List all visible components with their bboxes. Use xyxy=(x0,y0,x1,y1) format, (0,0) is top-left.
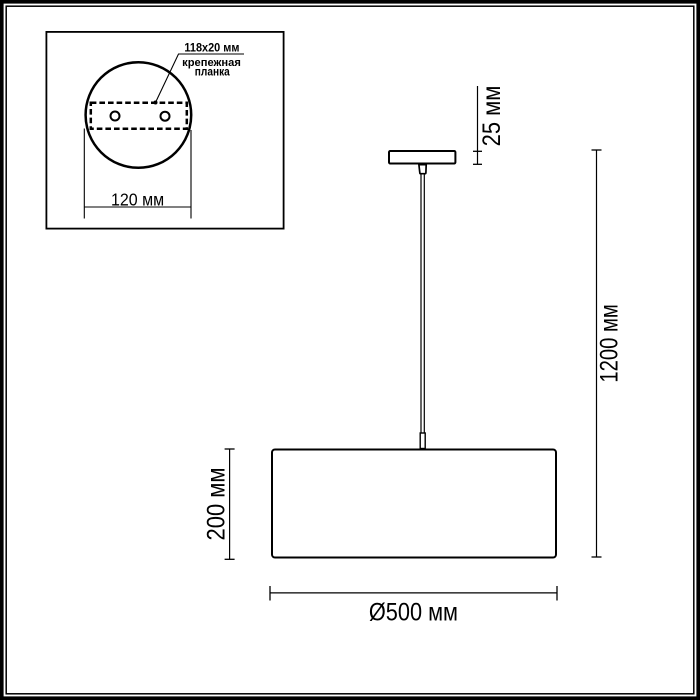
svg-text:25 мм: 25 мм xyxy=(478,86,506,147)
svg-text:Ø500 мм: Ø500 мм xyxy=(369,598,458,626)
svg-text:1200 мм: 1200 мм xyxy=(594,304,623,382)
svg-text:планка: планка xyxy=(195,66,231,79)
svg-text:118x20 мм: 118x20 мм xyxy=(184,42,239,54)
svg-text:200 мм: 200 мм xyxy=(202,467,230,540)
svg-text:120 мм: 120 мм xyxy=(111,190,164,210)
